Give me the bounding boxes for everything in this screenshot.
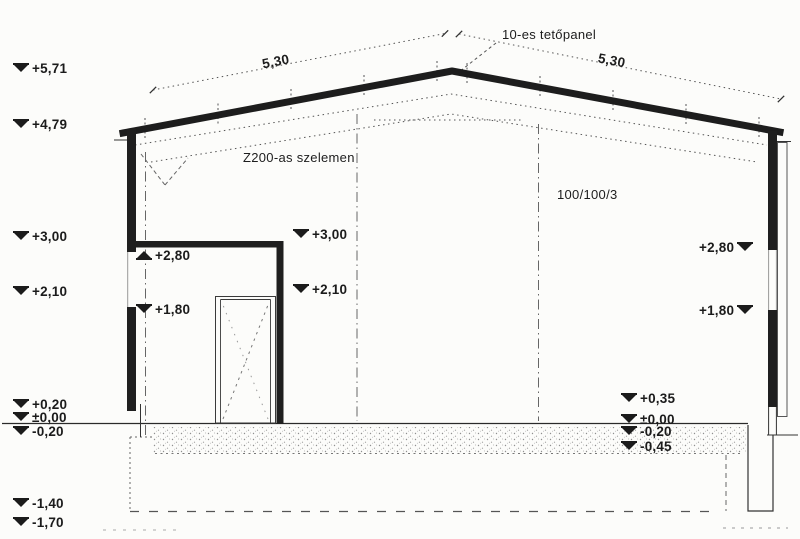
level-triangle-down-icon: [294, 229, 308, 239]
level-triangle-down-icon: [137, 304, 151, 314]
level-triangle-down-icon: [14, 412, 28, 422]
elevation-value: +3,00: [312, 227, 347, 242]
elevation-marker: +1,80: [137, 302, 190, 316]
elevation-value: +4,79: [32, 117, 67, 132]
elevation-value: +2,10: [32, 284, 67, 299]
annex-wall: [277, 241, 284, 424]
elevation-value: +2,80: [155, 248, 190, 263]
eave-brace-lines: [141, 154, 188, 185]
level-triangle-down-icon: [14, 426, 28, 436]
elevation-value: +5,71: [32, 61, 67, 76]
elevation-marker: -1,70: [14, 515, 64, 529]
elevation-marker: +4,79: [14, 117, 67, 131]
elevation-marker: -1,40: [14, 496, 64, 510]
roof-panel-leader: [459, 43, 496, 72]
elevation-value: +0,35: [640, 391, 675, 406]
roof-line: [123, 71, 780, 133]
level-triangle-down-icon: [738, 242, 752, 252]
eave-ticks: [114, 140, 791, 142]
elevation-value: -0,45: [640, 439, 672, 454]
right-wall-lower-panel: [768, 310, 777, 407]
elevation-marker: +3,00: [294, 227, 347, 241]
level-triangle-down-icon: [622, 426, 636, 436]
door-swing-line-2: [223, 305, 268, 419]
level-triangle-down-icon: [14, 399, 28, 409]
door-jambs: [221, 300, 271, 424]
right-wall: [768, 131, 777, 407]
left-wall-lower-panel: [127, 307, 136, 411]
roof-panel-label: 10-es tetőpanel: [502, 27, 596, 42]
annex: [133, 241, 284, 424]
elevation-marker: -0,20: [622, 424, 672, 438]
elevation-marker: +1,80: [699, 303, 752, 317]
elevation-marker: +2,10: [294, 282, 347, 296]
elevation-marker: ±0,00: [14, 410, 67, 424]
column-label: 100/100/3: [557, 187, 618, 202]
level-triangle-down-icon: [622, 441, 636, 451]
elevation-value: +2,80: [699, 240, 734, 255]
section-drawing-sheet: 10-es tetőpanel 5,30 5,30 Z200-as szelem…: [0, 0, 800, 539]
elevation-value: -0,20: [32, 424, 64, 439]
elevation-value: +1,80: [155, 302, 190, 317]
level-triangle-down-icon: [14, 119, 28, 129]
level-triangle-down-icon: [622, 393, 636, 403]
level-triangle-down-icon: [14, 286, 28, 296]
elevation-marker: +3,00: [14, 229, 67, 243]
left-wall-upper-panel: [127, 129, 136, 252]
level-triangle-up-icon: [137, 250, 151, 260]
right-wall-base-lines: [769, 407, 777, 435]
elevation-marker: -0,45: [622, 439, 672, 453]
level-triangle-down-icon: [14, 63, 28, 73]
elevation-marker: +2,10: [14, 284, 67, 298]
elevation-value: +1,80: [699, 303, 734, 318]
elevation-marker: +5,71: [14, 61, 67, 75]
elevation-value: +2,10: [312, 282, 347, 297]
door-frame: [216, 297, 276, 424]
purlin-lines: [135, 94, 767, 162]
level-triangle-down-icon: [14, 517, 28, 527]
level-triangle-down-icon: [14, 231, 28, 241]
section-linework: [0, 0, 800, 539]
level-triangle-down-icon: [622, 414, 636, 424]
elevation-marker: +2,80: [137, 248, 190, 262]
elevation-value: -1,40: [32, 496, 64, 511]
left-wall: [127, 129, 136, 411]
purlin-label: Z200-as szelemen: [243, 150, 355, 165]
elevation-marker: +0,35: [622, 391, 675, 405]
right-wall-outer-face: [778, 143, 788, 417]
right-wall-upper-panel: [768, 131, 777, 250]
elevation-marker: +2,80: [699, 240, 752, 254]
right-window-band: [769, 250, 777, 310]
elevation-value: ±0,00: [32, 410, 67, 425]
elevation-value: -1,70: [32, 515, 64, 530]
level-triangle-down-icon: [294, 284, 308, 294]
level-triangle-down-icon: [14, 498, 28, 508]
elevation-value: +3,00: [32, 229, 67, 244]
elevation-value: -0,20: [640, 424, 672, 439]
level-triangle-down-icon: [738, 305, 752, 315]
elevation-marker: -0,20: [14, 424, 64, 438]
